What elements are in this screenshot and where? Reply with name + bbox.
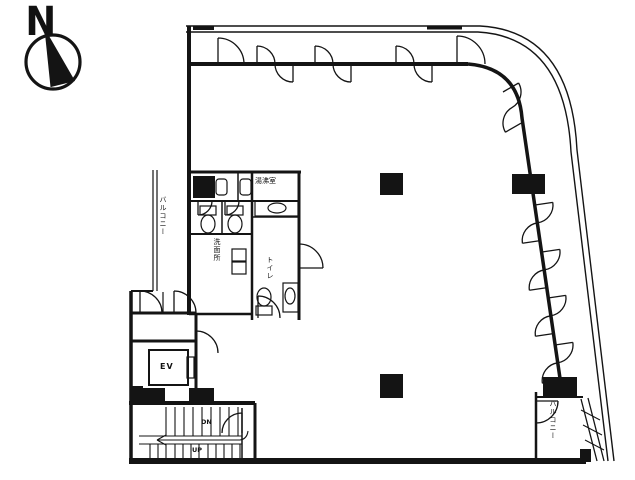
counter-1 (232, 249, 246, 261)
stairs-up-label: UP (192, 447, 202, 454)
stairs-down-label: DN (201, 419, 212, 426)
sink-basin (268, 203, 286, 213)
columns (131, 173, 591, 462)
window-symbols (257, 46, 578, 383)
door-corridor-2 (174, 291, 196, 313)
kitchenette-label: 湯沸室 (255, 178, 276, 185)
balcony-right-label: バルコニー (549, 400, 556, 440)
toilet-label: トイレ (266, 256, 273, 280)
door-top-right (457, 36, 485, 64)
counter-2 (232, 262, 246, 274)
washbasin (285, 288, 295, 304)
toilet-1-bowl (201, 215, 215, 233)
door-cluster-east (299, 244, 323, 268)
right-balcony-room (536, 392, 604, 461)
floor-plan: N バルコニー 湯沸室 洗面所 トイレ EV DN UP バルコニー (0, 0, 635, 480)
elevator-label: EV (160, 363, 174, 371)
floor-plan-drawing (0, 0, 635, 480)
urinal-1 (216, 179, 227, 195)
balcony-left-label: バルコニー (159, 196, 166, 236)
door-stairs (222, 413, 242, 433)
compass-n-label: N (25, 2, 56, 42)
hatch-lines (581, 410, 604, 450)
door-corridor-1 (140, 291, 162, 313)
door-top-left (218, 38, 244, 64)
urinal-2 (240, 179, 251, 195)
toilet-2-bowl (228, 215, 242, 233)
door-ev-hall (196, 331, 218, 353)
washroom-label: 洗面所 (213, 238, 220, 262)
